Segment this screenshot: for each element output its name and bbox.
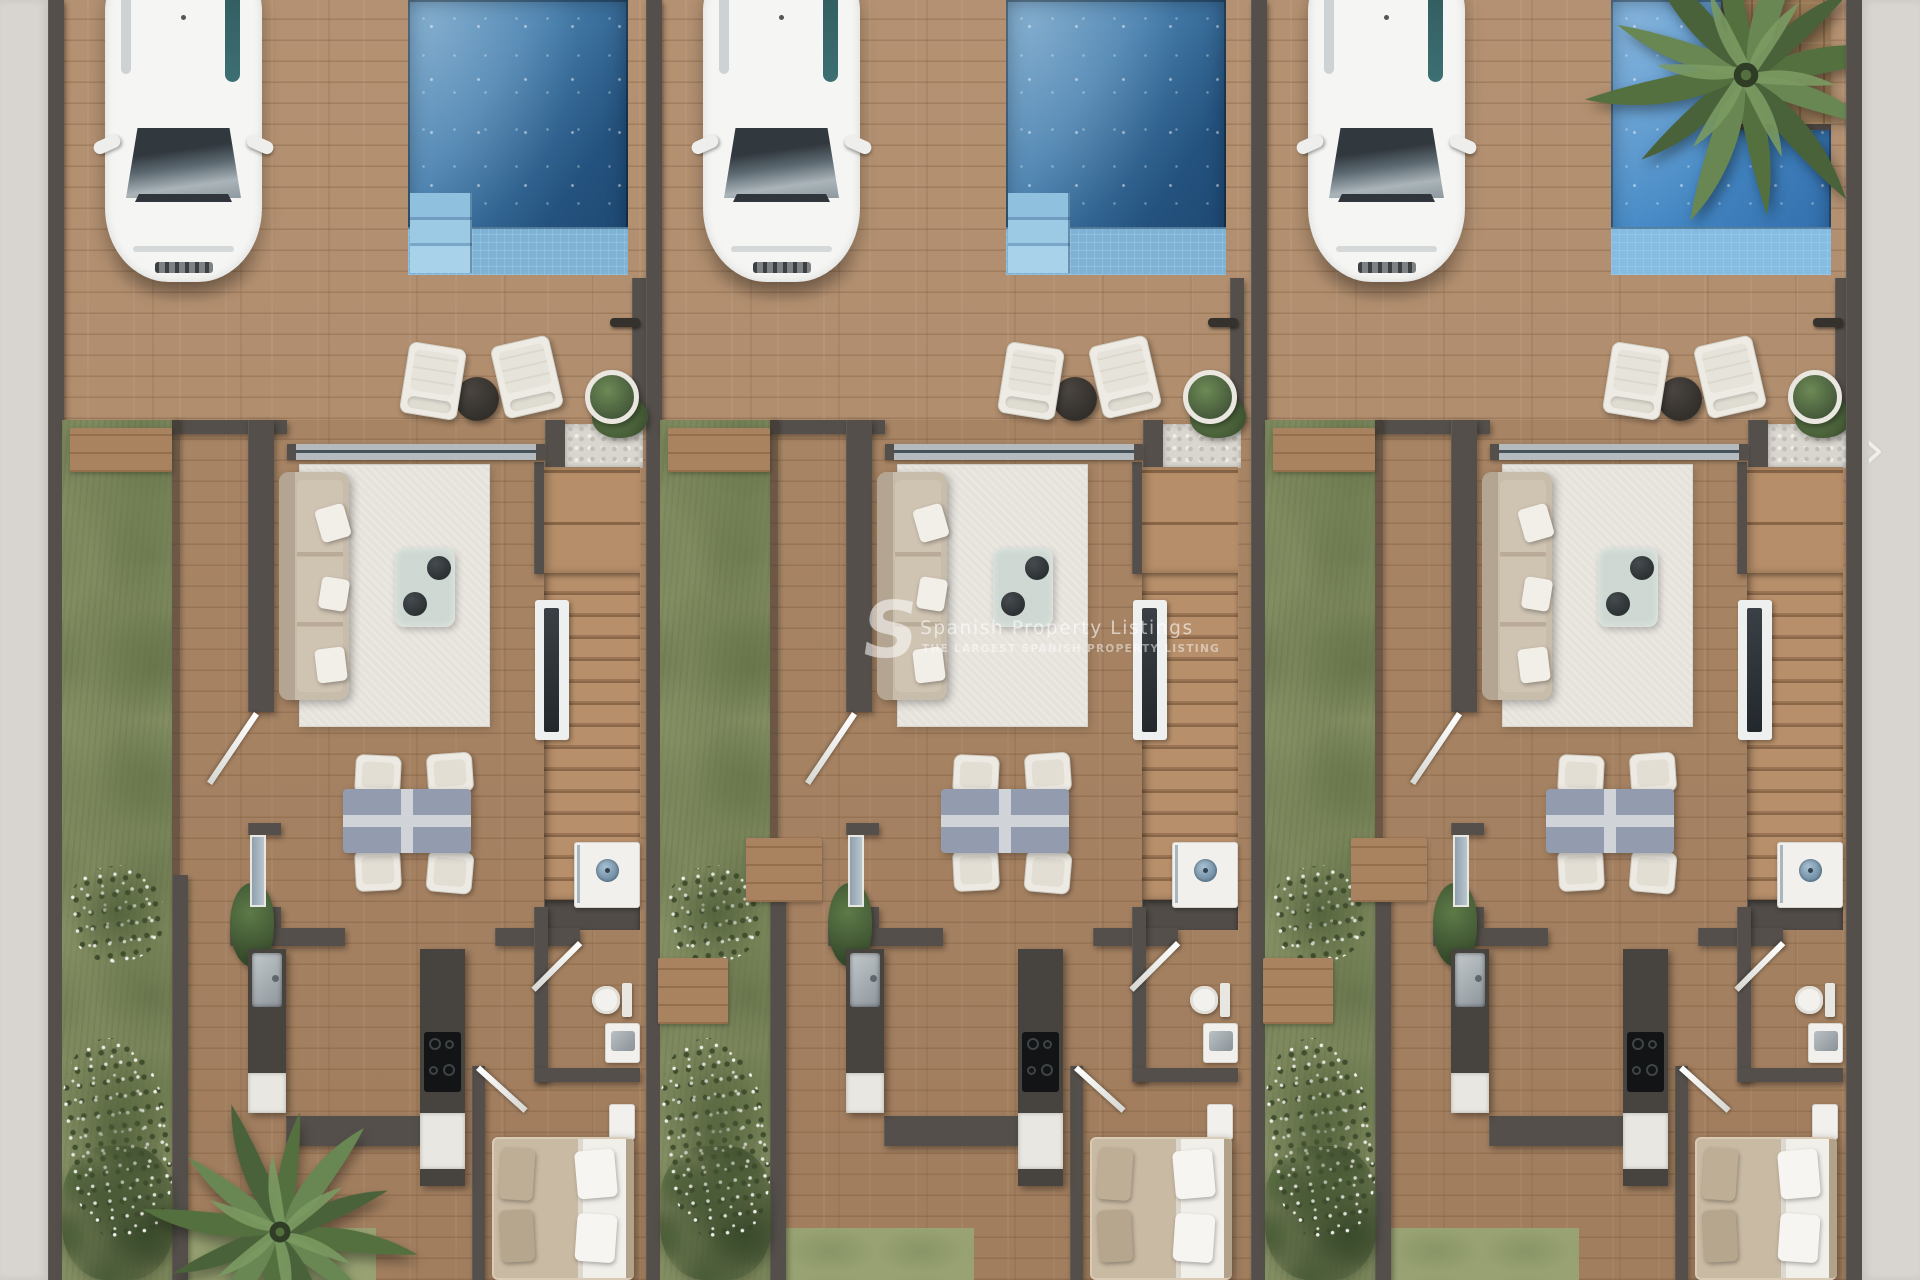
table-decor	[1630, 556, 1654, 580]
toilet-bowl	[1190, 986, 1218, 1014]
potted-plant	[585, 370, 639, 424]
planter-wall	[1143, 420, 1163, 472]
washbasin	[1203, 1023, 1238, 1063]
shower-tray	[1172, 842, 1238, 908]
parked-car	[703, 0, 860, 285]
parked-car	[105, 0, 262, 285]
shower-tray	[574, 842, 640, 908]
bathroom-wall	[1737, 1068, 1843, 1082]
car-side-window	[1324, 0, 1334, 74]
table-decor	[1025, 556, 1049, 580]
bed-pillow	[1096, 1147, 1134, 1201]
dining-chair	[354, 848, 402, 892]
car-dashboard	[135, 194, 232, 202]
car-windshield	[1329, 128, 1444, 198]
toilet-tank	[622, 983, 632, 1017]
table-decor	[1001, 592, 1025, 616]
toilet-tank	[1825, 983, 1835, 1017]
stairs-landing	[1747, 467, 1843, 573]
living-room-side-wall	[846, 420, 872, 712]
pool	[1006, 0, 1226, 275]
sofa-pillow	[1517, 646, 1551, 683]
sofa-pillow	[314, 646, 348, 683]
dining-table	[1546, 789, 1674, 853]
toilet-bowl	[592, 986, 620, 1014]
garden-stepping-stone	[746, 838, 822, 902]
townhouse-unit-2	[646, 0, 1258, 1280]
stair-wall	[534, 462, 544, 574]
gate-handle	[1208, 318, 1238, 327]
sofa-pillow	[318, 576, 351, 612]
headboard	[1829, 1139, 1837, 1278]
car-windshield	[126, 128, 241, 198]
headboard	[1224, 1139, 1232, 1278]
tv-cabinet	[1133, 600, 1167, 740]
bed-pillow	[1097, 1209, 1134, 1263]
tv-cabinet	[1738, 600, 1772, 740]
table-decor	[427, 556, 451, 580]
car-rear-window	[1428, 0, 1443, 82]
living-room-side-wall	[1451, 420, 1477, 712]
car-dashboard	[733, 194, 830, 202]
dining-chair	[1628, 849, 1677, 895]
kitchen-island	[1623, 949, 1668, 1186]
tv-cabinet	[535, 600, 569, 740]
boundary-wall-right	[1846, 0, 1862, 1280]
kitchen-back-wall	[884, 1116, 1018, 1146]
shower-drain	[1194, 859, 1217, 882]
car-windshield	[724, 128, 839, 198]
garden-stepping-stone	[658, 958, 728, 1024]
dining-chair	[952, 848, 1000, 892]
glazed-side-door	[1453, 835, 1469, 907]
counter-base	[846, 1073, 884, 1113]
car-side-window	[719, 0, 729, 74]
dining-chair	[425, 849, 474, 895]
bedroom-wall	[1070, 1066, 1083, 1280]
coffee-table	[1598, 548, 1658, 627]
stairs-landing	[544, 467, 640, 573]
toilet-bowl	[1795, 986, 1823, 1014]
garden-wall	[770, 875, 786, 1280]
wall-stub	[846, 823, 879, 835]
toilet-tank	[1220, 983, 1230, 1017]
bed-pillow	[1702, 1209, 1739, 1263]
table-decor	[1606, 592, 1630, 616]
toilet	[1795, 983, 1835, 1017]
wall-stub	[1451, 823, 1484, 835]
car-bumper-trim	[731, 246, 832, 252]
bed-pillow	[1172, 1148, 1216, 1199]
car-antenna	[779, 15, 784, 20]
cooktop	[1627, 1032, 1664, 1092]
counter-base	[1018, 1113, 1063, 1169]
nightstand	[1812, 1104, 1838, 1140]
living-room-side-wall	[248, 420, 274, 712]
planter-wall	[1748, 420, 1768, 472]
property-floor-plan-render: › S Spanish Property Listings THE LARGES…	[0, 0, 1920, 1280]
gate-handle	[1813, 318, 1843, 327]
car-side-window	[121, 0, 131, 74]
washbasin	[605, 1023, 640, 1063]
shower-drain	[1799, 859, 1822, 882]
bed-pillow	[499, 1209, 536, 1263]
coffee-table	[993, 548, 1053, 627]
lounge-chair	[1602, 341, 1671, 421]
car-bumper-trim	[1336, 246, 1437, 252]
dining-chair	[1023, 849, 1072, 895]
bathroom-wall	[534, 1068, 640, 1082]
cooktop	[424, 1032, 461, 1092]
nightstand	[1207, 1104, 1233, 1140]
garden-deck-patch	[1273, 428, 1375, 472]
bathroom-wall	[1737, 907, 1751, 1082]
kitchen-counter	[1451, 949, 1489, 1113]
townhouse-unit-1	[48, 0, 660, 1280]
car-antenna	[181, 15, 186, 20]
pool	[408, 0, 628, 275]
dining-table	[343, 789, 471, 853]
counter-base	[1623, 1113, 1668, 1169]
lounge-chair	[997, 341, 1066, 421]
sliding-glass-door	[885, 444, 1143, 460]
garden-deck-patch	[668, 428, 770, 472]
pool-steps	[1008, 193, 1070, 273]
bed-pillow	[1777, 1148, 1821, 1199]
bed-pillow	[574, 1213, 617, 1264]
sofa-pillow	[912, 646, 946, 683]
bed-pillow	[498, 1147, 536, 1201]
planter-wall	[545, 420, 565, 472]
dining-chair	[1557, 848, 1605, 892]
pool-steps	[410, 193, 472, 273]
carousel-next-arrow[interactable]: ›	[1864, 424, 1885, 476]
sofa-pillow	[916, 576, 949, 612]
kitchen-sink	[1455, 953, 1485, 1007]
shower-drain	[596, 859, 619, 882]
kitchen-back-wall	[1489, 1116, 1623, 1146]
bathroom-wall	[1132, 1068, 1238, 1082]
kitchen-island	[1018, 949, 1063, 1186]
parked-car	[1308, 0, 1465, 285]
potted-plant	[1183, 370, 1237, 424]
kitchen-sink	[252, 953, 282, 1007]
lounge-chair	[399, 341, 468, 421]
bed-pillow	[574, 1148, 618, 1199]
garden-stepping-stone	[1263, 958, 1333, 1024]
gate-handle	[610, 318, 640, 327]
car-antenna	[1384, 15, 1389, 20]
sliding-glass-door	[1490, 444, 1748, 460]
toilet	[1190, 983, 1230, 1017]
shower-tray	[1777, 842, 1843, 908]
car-dashboard	[1338, 194, 1435, 202]
bed-pillow	[1172, 1213, 1215, 1264]
headboard	[626, 1139, 634, 1278]
car-grille	[753, 262, 811, 273]
kitchen-counter	[846, 949, 884, 1113]
potted-plant	[1788, 370, 1842, 424]
car-grille	[155, 262, 213, 273]
garden-stepping-stone	[1351, 838, 1427, 902]
car-grille	[1358, 262, 1416, 273]
toilet	[592, 983, 632, 1017]
washbasin	[1808, 1023, 1843, 1063]
car-rear-window	[225, 0, 240, 82]
glazed-side-door	[848, 835, 864, 907]
table-decor	[403, 592, 427, 616]
kitchen-sink	[850, 953, 880, 1007]
page-margin-left	[0, 0, 48, 1280]
garden-edge	[770, 420, 778, 875]
glazed-side-door	[250, 835, 266, 907]
bathroom-wall	[1132, 907, 1146, 1082]
townhouse-unit-3	[1251, 0, 1863, 1280]
lawn-patch	[1391, 1228, 1579, 1280]
car-bumper-trim	[133, 246, 234, 252]
bedroom-wall	[1675, 1066, 1688, 1280]
coffee-table	[395, 548, 455, 627]
garden-deck-patch	[70, 428, 172, 472]
lawn-patch	[786, 1228, 974, 1280]
sliding-glass-door	[287, 444, 545, 460]
cooktop	[1022, 1032, 1059, 1092]
garden-edge	[1375, 420, 1383, 875]
stair-wall	[1132, 462, 1142, 574]
wall-stub	[248, 823, 281, 835]
nightstand	[609, 1104, 635, 1140]
sofa-pillow	[1521, 576, 1554, 612]
stairs-landing	[1142, 467, 1238, 573]
counter-base	[1451, 1073, 1489, 1113]
page-margin-right: ›	[1862, 0, 1920, 1280]
bed-pillow	[1777, 1213, 1820, 1264]
dining-table	[941, 789, 1069, 853]
car-rear-window	[823, 0, 838, 82]
garden-wall	[1375, 875, 1391, 1280]
bed-pillow	[1701, 1147, 1739, 1201]
garden-edge	[172, 420, 180, 875]
stair-wall	[1737, 462, 1747, 574]
bathroom-wall	[534, 907, 548, 1082]
